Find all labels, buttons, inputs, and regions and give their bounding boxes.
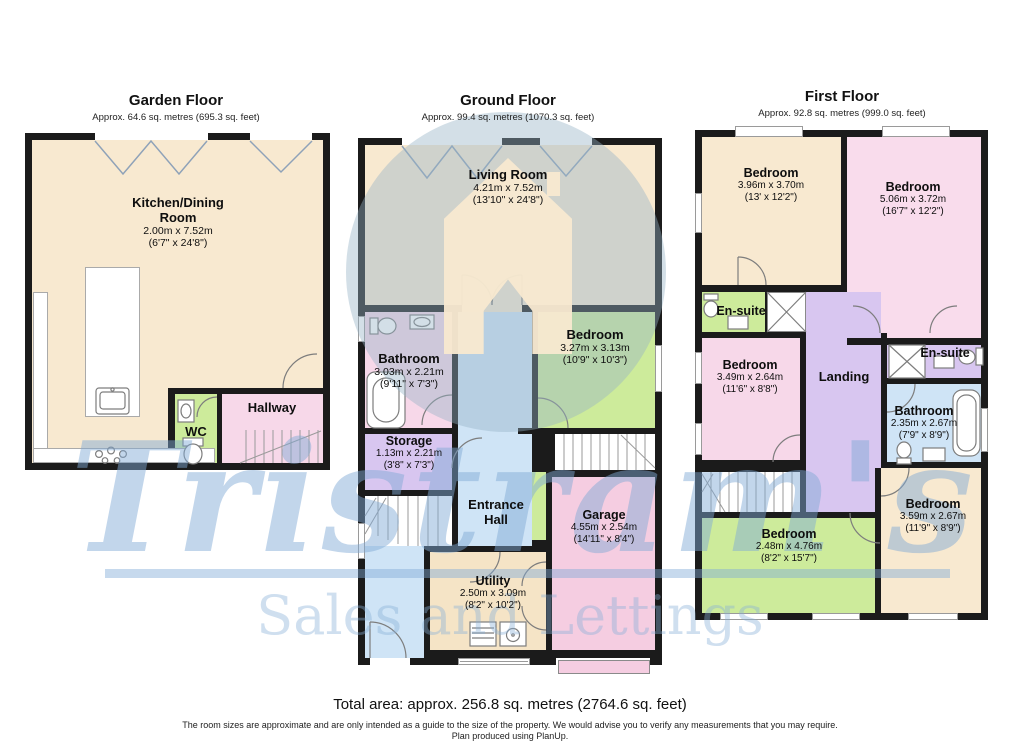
ground-floor-title: Ground Floor xyxy=(408,92,608,109)
label-bathroom-1: Bathroom 2.35m x 2.67m (7'9" x 8'9") xyxy=(872,404,976,441)
label-storage: Storage 1.13m x 2.21m (3'8" x 7'3") xyxy=(359,434,459,471)
label-entrance-hall: Entrance Hall xyxy=(456,498,536,528)
garden-floor-symbols xyxy=(25,133,330,470)
ground-floor-subtitle: Approx. 99.4 sq. metres (1070.3 sq. feet… xyxy=(378,112,638,123)
garden-floor-subtitle: Approx. 64.6 sq. metres (695.3 sq. feet) xyxy=(46,112,306,123)
label-ensuite-1: En-suite xyxy=(706,304,776,318)
label-bathroom-g: Bathroom 3.03m x 2.21m (9'11" x 7'3") xyxy=(359,352,459,391)
label-bedroom-1: Bedroom 3.96m x 3.70m (13' x 12'2") xyxy=(716,166,826,203)
label-bedroom-2: Bedroom 5.06m x 3.72m (16'7" x 12'2") xyxy=(858,180,968,217)
label-hallway: Hallway xyxy=(227,401,317,416)
garden-floor-plan xyxy=(25,133,330,470)
total-area-text: Total area: approx. 256.8 sq. metres (27… xyxy=(0,696,1020,713)
label-landing: Landing xyxy=(804,370,884,385)
label-kitchen-dining: Kitchen/Dining Room 2.00m x 7.52m (6'7" … xyxy=(113,196,243,250)
produced-by-text: Plan produced using PlanUp. xyxy=(0,731,1020,741)
label-wc: WC xyxy=(171,425,221,440)
label-living: Living Room 4.21m x 7.52m (13'10" x 24'8… xyxy=(468,168,548,207)
garden-floor-title: Garden Floor xyxy=(76,92,276,109)
label-bedroom-3: Bedroom 3.49m x 2.64m (11'6" x 8'8") xyxy=(698,358,802,395)
first-floor-subtitle: Approx. 92.8 sq. metres (999.0 sq. feet) xyxy=(712,108,972,119)
floorplan-page: Garden Floor Approx. 64.6 sq. metres (69… xyxy=(0,0,1020,742)
label-utility: Utility 2.50m x 3.09m (8'2" x 10'2") xyxy=(443,574,543,611)
label-bedroom-4: Bedroom 2.48m x 4.76m (8'2" x 15'7") xyxy=(737,527,841,564)
disclaimer-text: The room sizes are approximate and are o… xyxy=(0,720,1020,730)
first-floor-title: First Floor xyxy=(742,88,942,105)
label-bedroom-g: Bedroom 3.27m x 3.13m (10'9" x 10'3") xyxy=(540,328,650,367)
label-bedroom-5: Bedroom 3.59m x 2.67m (11'9" x 8'9") xyxy=(881,497,985,534)
label-ensuite-2: En-suite xyxy=(910,346,980,360)
label-garage: Garage 4.55m x 2.54m (14'11" x 8'4") xyxy=(556,508,652,545)
